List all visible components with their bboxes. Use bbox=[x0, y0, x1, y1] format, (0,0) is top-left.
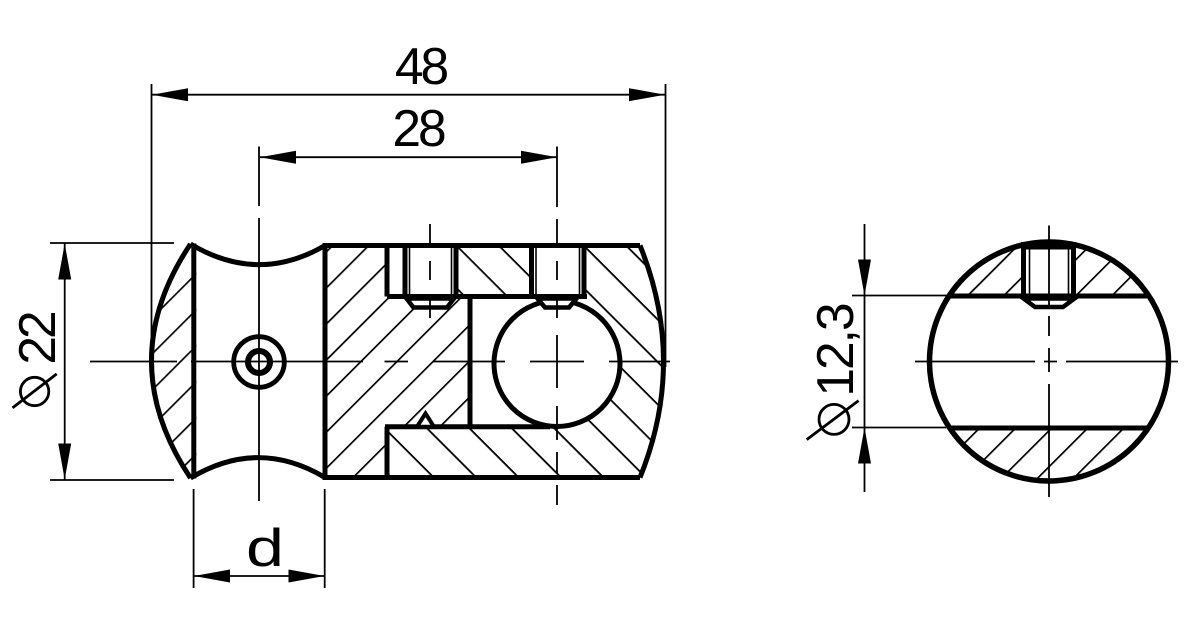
svg-text:48: 48 bbox=[395, 37, 448, 95]
svg-text:12,3: 12,3 bbox=[806, 304, 864, 397]
svg-text:22: 22 bbox=[8, 312, 66, 365]
svg-text:28: 28 bbox=[392, 99, 445, 157]
svg-text:d: d bbox=[246, 519, 284, 578]
